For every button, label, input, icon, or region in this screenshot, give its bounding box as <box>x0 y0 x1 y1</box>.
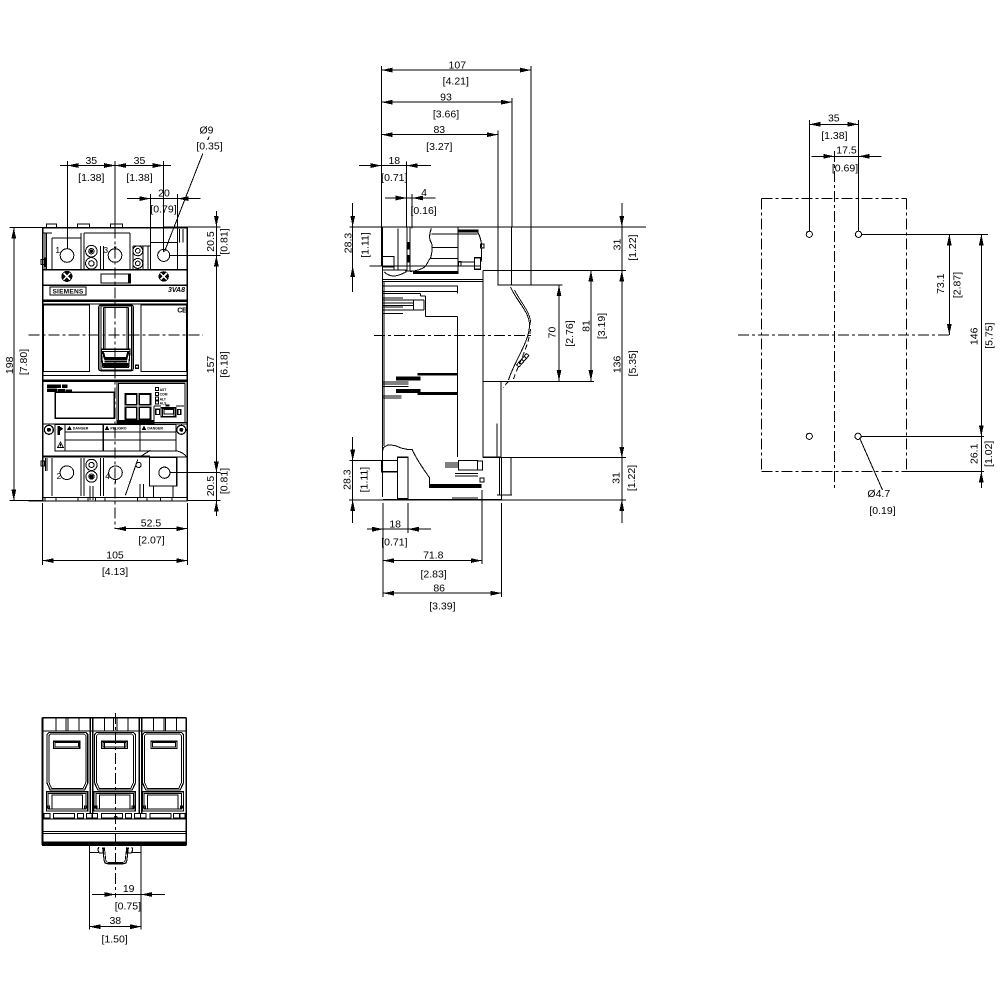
svg-text:3: 3 <box>103 245 108 255</box>
svg-text:DANGER: DANGER <box>147 427 163 431</box>
svg-text:COM: COM <box>160 393 168 397</box>
svg-text:[2.76]: [2.76] <box>564 320 576 346</box>
svg-text:93: 93 <box>440 91 452 103</box>
svg-text:[0.81]: [0.81] <box>218 228 230 254</box>
svg-text:18: 18 <box>389 518 401 530</box>
svg-text:[2.83]: [2.83] <box>420 569 446 581</box>
svg-text:[0.79]: [0.79] <box>150 204 176 216</box>
svg-text:26.1: 26.1 <box>969 443 981 464</box>
svg-text:Ø4.7: Ø4.7 <box>867 488 890 500</box>
svg-text:28.3: 28.3 <box>343 233 355 254</box>
svg-text:[5.75]: [5.75] <box>984 322 996 348</box>
svg-text:[1.22]: [1.22] <box>626 465 638 491</box>
svg-text:73.1: 73.1 <box>935 273 947 294</box>
svg-text:4: 4 <box>421 187 427 199</box>
svg-text:157: 157 <box>205 356 217 374</box>
svg-text:[0.71]: [0.71] <box>381 537 407 549</box>
svg-text:[7.80]: [7.80] <box>18 349 30 375</box>
svg-text:[2.07]: [2.07] <box>138 534 164 546</box>
svg-text:[1.11]: [1.11] <box>358 467 370 493</box>
svg-text:[3.39]: [3.39] <box>429 601 455 613</box>
svg-text:[5.35]: [5.35] <box>627 350 639 376</box>
svg-text:105: 105 <box>106 550 124 562</box>
svg-text:19: 19 <box>123 883 135 895</box>
svg-text:20.5: 20.5 <box>205 231 217 252</box>
svg-text:20.5: 20.5 <box>205 476 217 497</box>
svg-text:AST: AST <box>160 388 168 392</box>
svg-text:136: 136 <box>612 355 624 373</box>
svg-text:2: 2 <box>57 471 62 481</box>
svg-text:DANGER: DANGER <box>73 427 89 431</box>
svg-text:35: 35 <box>85 155 97 167</box>
svg-text:[0.35]: [0.35] <box>196 141 222 153</box>
svg-text:81: 81 <box>580 320 592 332</box>
svg-text:PELIGRO: PELIGRO <box>110 427 126 431</box>
svg-text:[1.38]: [1.38] <box>78 172 104 184</box>
svg-text:[0.69]: [0.69] <box>832 162 858 174</box>
svg-text:[0.81]: [0.81] <box>218 468 230 494</box>
svg-text:28.3: 28.3 <box>342 469 354 490</box>
svg-text:[0.16]: [0.16] <box>410 205 436 217</box>
svg-text:52.5: 52.5 <box>141 518 162 530</box>
svg-text:[0.71]: [0.71] <box>381 172 407 184</box>
svg-text:[3.19]: [3.19] <box>596 313 608 339</box>
svg-text:1: 1 <box>55 245 60 255</box>
svg-text:71.8: 71.8 <box>423 549 444 561</box>
svg-text:70: 70 <box>546 327 558 339</box>
svg-text:20: 20 <box>158 187 170 199</box>
svg-text:[2.87]: [2.87] <box>952 272 964 298</box>
svg-text:17.5: 17.5 <box>836 145 857 157</box>
svg-text:CE: CE <box>177 306 187 315</box>
svg-text:[0.75]: [0.75] <box>115 901 141 913</box>
svg-text:198: 198 <box>4 356 16 374</box>
svg-text:18: 18 <box>388 155 400 167</box>
svg-text:31: 31 <box>611 239 623 251</box>
svg-text:146: 146 <box>969 327 981 345</box>
svg-text:[0.19]: [0.19] <box>869 505 895 517</box>
svg-text:4: 4 <box>105 471 110 481</box>
svg-text:[1.38]: [1.38] <box>126 172 152 184</box>
svg-text:[1.22]: [1.22] <box>627 234 639 260</box>
svg-text:35: 35 <box>134 155 146 167</box>
svg-text:[1.02]: [1.02] <box>983 441 995 467</box>
svg-text:3VA8: 3VA8 <box>168 287 185 294</box>
svg-text:[4.13]: [4.13] <box>102 566 128 578</box>
svg-text:31: 31 <box>610 472 622 484</box>
svg-text:35: 35 <box>828 113 840 125</box>
svg-text:Ø9: Ø9 <box>199 124 213 136</box>
svg-text:[1.38]: [1.38] <box>821 130 847 142</box>
svg-text:107: 107 <box>449 59 467 71</box>
svg-text:83: 83 <box>433 124 445 136</box>
svg-text:SIEMENS: SIEMENS <box>52 289 83 296</box>
svg-text:[3.66]: [3.66] <box>433 109 459 121</box>
svg-text:[1.11]: [1.11] <box>359 232 371 258</box>
svg-text:86: 86 <box>433 582 445 594</box>
svg-text:[6.18]: [6.18] <box>218 351 230 377</box>
svg-text:[4.21]: [4.21] <box>443 76 469 88</box>
svg-text:[1.50]: [1.50] <box>101 933 127 945</box>
svg-text:38: 38 <box>109 915 121 927</box>
svg-text:[3.27]: [3.27] <box>426 141 452 153</box>
